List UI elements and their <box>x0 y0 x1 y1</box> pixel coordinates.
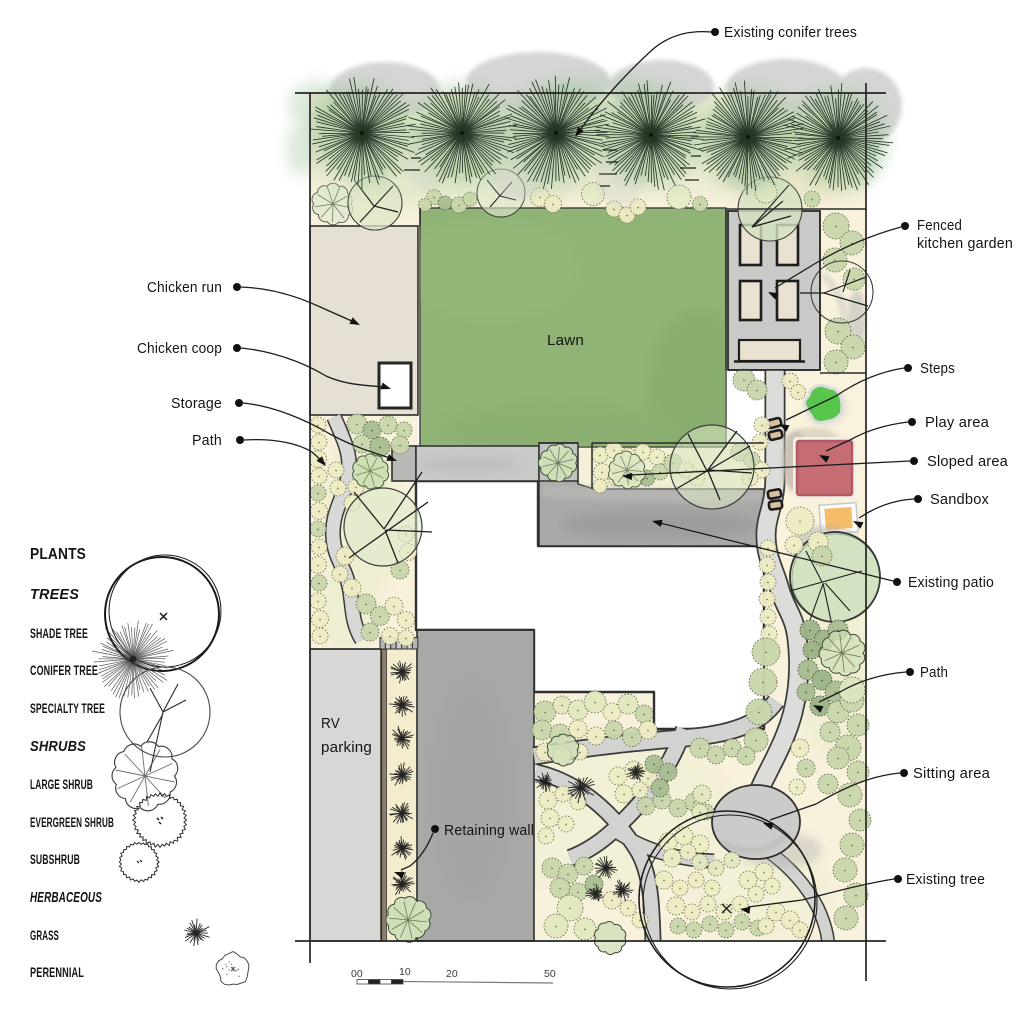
svg-text:Existing patio: Existing patio <box>908 574 994 591</box>
svg-text:Chicken coop: Chicken coop <box>137 340 222 357</box>
svg-text:TREES: TREES <box>30 586 79 603</box>
svg-text:Existing tree: Existing tree <box>906 871 985 888</box>
svg-text:00: 00 <box>351 968 363 980</box>
svg-text:Path: Path <box>920 664 948 681</box>
svg-text:Lawn: Lawn <box>547 332 584 349</box>
svg-text:PLANTS: PLANTS <box>30 546 86 563</box>
svg-text:HERBACEOUS: HERBACEOUS <box>30 889 102 906</box>
svg-text:Play area: Play area <box>925 414 989 431</box>
svg-text:Steps: Steps <box>920 360 955 377</box>
svg-text:GRASS: GRASS <box>30 928 59 943</box>
svg-text:Sitting area: Sitting area <box>913 765 990 782</box>
svg-text:Storage: Storage <box>171 395 222 412</box>
svg-text:CONIFER TREE: CONIFER TREE <box>30 663 98 678</box>
svg-text:RV: RV <box>321 715 341 732</box>
svg-text:SHRUBS: SHRUBS <box>30 738 86 755</box>
svg-text:Sandbox: Sandbox <box>930 491 989 508</box>
svg-text:50: 50 <box>544 968 556 980</box>
svg-text:Path: Path <box>192 432 222 449</box>
svg-text:10: 10 <box>399 966 411 978</box>
svg-text:Chicken run: Chicken run <box>147 279 222 296</box>
svg-text:SPECIALTY TREE: SPECIALTY TREE <box>30 701 105 716</box>
svg-text:parking: parking <box>321 739 372 756</box>
svg-text:SUBSHRUB: SUBSHRUB <box>30 852 80 867</box>
svg-text:Existing conifer trees: Existing conifer trees <box>724 24 857 41</box>
svg-text:Fenced: Fenced <box>917 217 962 234</box>
svg-text:20: 20 <box>446 968 458 980</box>
svg-text:LARGE SHRUB: LARGE SHRUB <box>30 777 93 792</box>
svg-text:PERENNIAL: PERENNIAL <box>30 965 84 980</box>
svg-text:Sloped area: Sloped area <box>927 453 1008 470</box>
svg-text:EVERGREEN SHRUB: EVERGREEN SHRUB <box>30 815 114 830</box>
svg-text:kitchen garden: kitchen garden <box>917 235 1013 252</box>
svg-text:SHADE TREE: SHADE TREE <box>30 626 88 641</box>
svg-text:Retaining wall: Retaining wall <box>444 822 534 839</box>
